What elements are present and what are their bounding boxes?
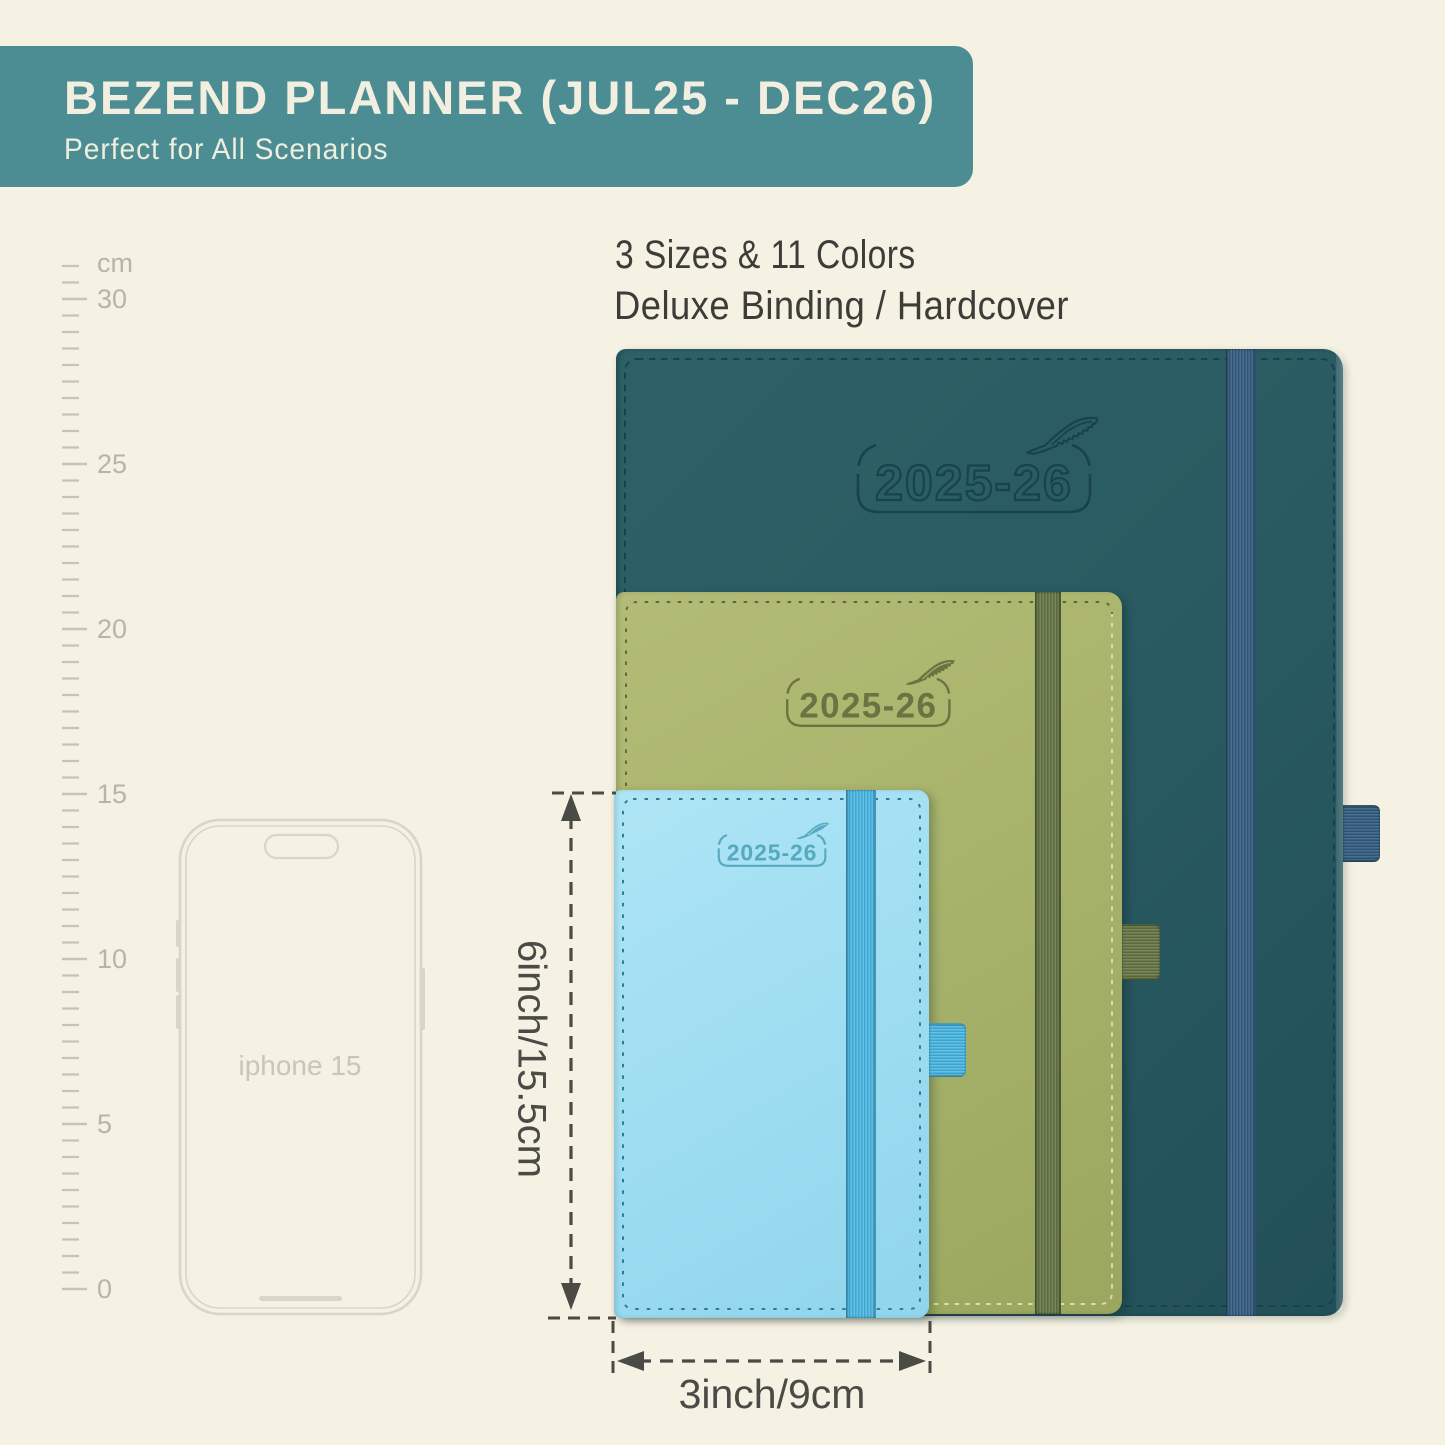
svg-text:10: 10 bbox=[97, 944, 127, 974]
svg-text:cm: cm bbox=[97, 248, 133, 278]
svg-text:3inch/9cm: 3inch/9cm bbox=[679, 1371, 866, 1417]
svg-text:15: 15 bbox=[97, 779, 127, 809]
svg-text:2025-26: 2025-26 bbox=[875, 455, 1073, 511]
svg-text:iphone 15: iphone 15 bbox=[238, 1050, 361, 1081]
svg-text:25: 25 bbox=[97, 449, 127, 479]
svg-text:5: 5 bbox=[97, 1109, 112, 1139]
svg-text:20: 20 bbox=[97, 614, 127, 644]
svg-text:30: 30 bbox=[97, 284, 127, 314]
svg-text:6inch/15.5cm: 6inch/15.5cm bbox=[509, 940, 553, 1178]
svg-text:0: 0 bbox=[97, 1274, 112, 1304]
svg-text:2025-26: 2025-26 bbox=[799, 686, 937, 725]
